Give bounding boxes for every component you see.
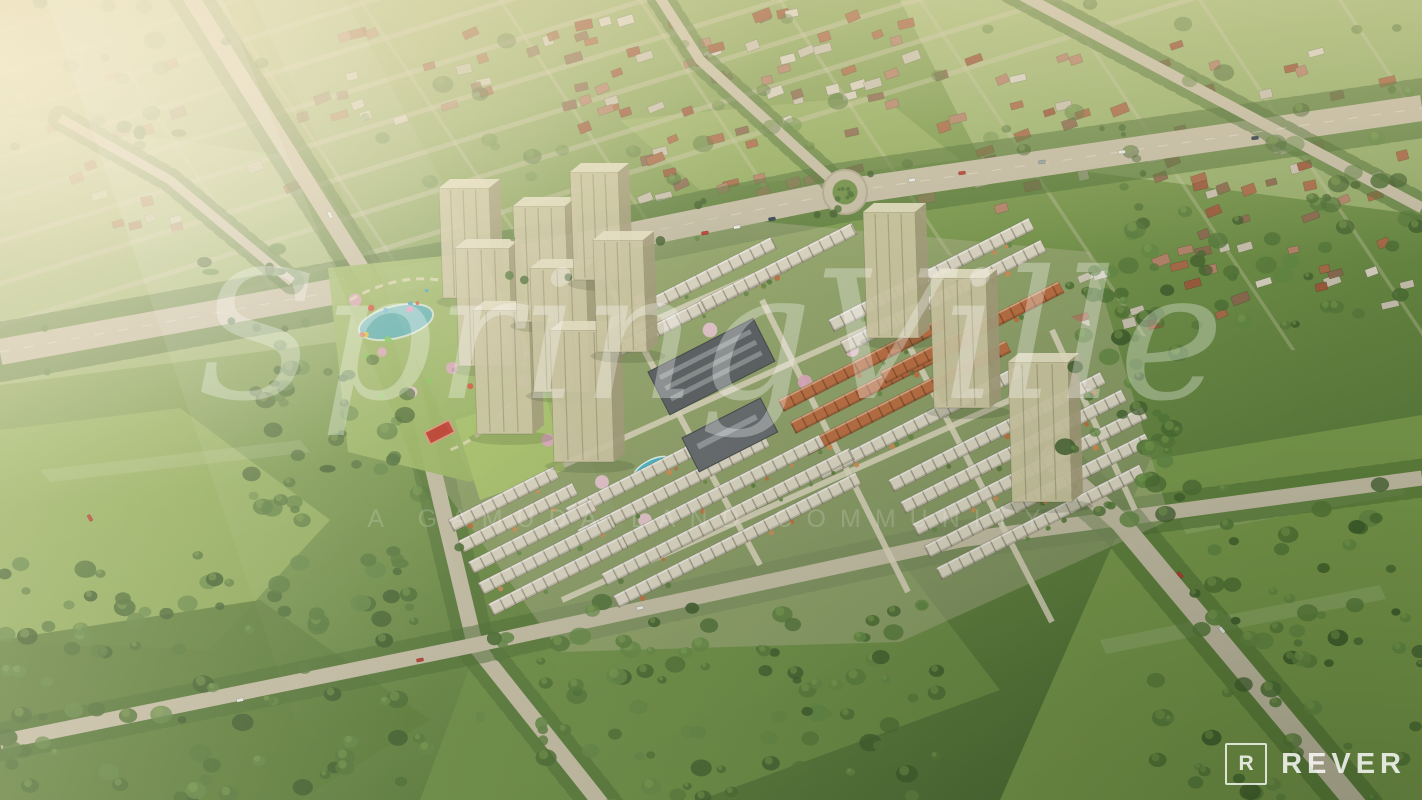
vignette	[0, 0, 1422, 800]
rever-logo-wordmark: REVER	[1281, 750, 1406, 779]
sunlight-haze	[0, 0, 1422, 800]
rever-logo-initial: R	[1238, 752, 1253, 776]
aerial-masterplan-photo: SpringVille A GAMUDA LAND COMMUNITY R RE…	[0, 0, 1422, 800]
rever-logo-mark: R	[1225, 743, 1267, 785]
rever-logo: R REVER	[1225, 743, 1406, 785]
aerial-rendering-canvas	[0, 0, 1422, 800]
